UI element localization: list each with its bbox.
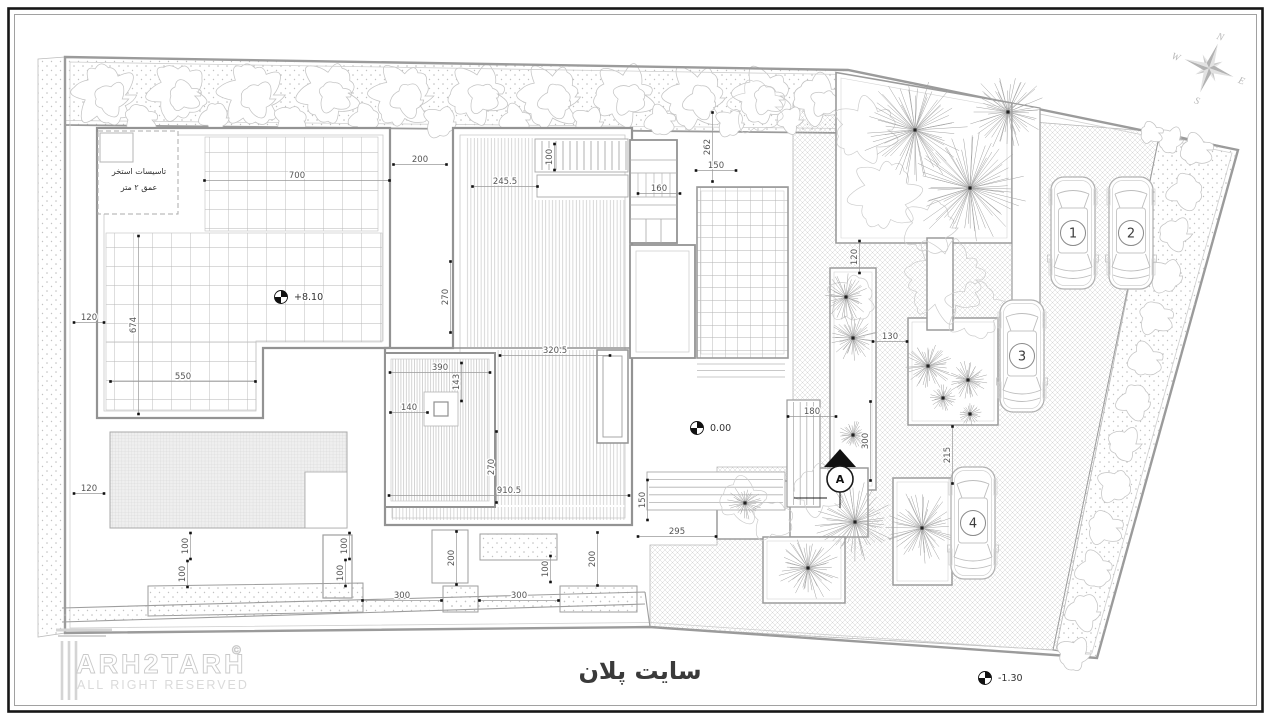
dimension-label: 200 [447,550,457,566]
dimension-label: 120 [850,249,860,265]
dimension-label: 100 [178,566,188,582]
logo-name: ARH2TARH [76,649,247,679]
dimension-label: 100 [340,538,350,554]
dimension-label: 120 [81,313,97,323]
dimension-label: 262 [703,139,713,155]
inner-roof-block [385,353,495,507]
dimension-label: 150 [708,161,724,171]
dimension-label: 150 [638,492,648,508]
pool-equipment-box: تاسيسات استخر عمق ٢ متر [98,131,178,214]
dimension-label: 143 [452,374,462,390]
elevation-label: -1.30 [998,673,1023,684]
dimension-label: 215 [943,447,953,463]
dimension-label: 300 [511,591,527,601]
drawing-title: سایت پلان [578,657,701,685]
parking-number: 3 [1018,350,1026,365]
dimension-label: 270 [487,459,497,475]
elevation-label: 0.00 [710,423,731,434]
car: 3 [997,300,1048,412]
dimension-label: 390 [432,363,448,373]
dimension-label: 130 [882,332,898,342]
skylight-shaft [597,350,628,443]
dimension-label: 160 [651,184,667,194]
dimension-label: 300 [394,591,410,601]
parking-number: 4 [969,517,977,532]
dimension-label: 674 [129,317,139,333]
parking-number: 2 [1127,227,1135,242]
elevation-marker: +8.10 [275,291,324,304]
dimension-label: 910.5 [497,486,521,496]
side-room [630,245,695,358]
drawing-sheet: تاسيسات استخر عمق ٢ متر [0,0,1271,720]
elevation-label: +8.10 [294,292,323,303]
pool-note-line1: تاسيسات استخر [111,167,166,176]
hall-notch [537,175,628,197]
elevation-marker: -1.30 [979,672,1023,685]
dimension-label: 700 [289,171,305,181]
car: 4 [948,467,999,579]
dimension-label: 100 [545,149,555,165]
pool-note-line2: عمق ٢ متر [120,183,158,192]
dimension-label: 320.5 [543,346,567,356]
site-plan-canvas: تاسيسات استخر عمق ٢ متر [0,0,1271,720]
dimension-label: 295 [669,527,685,537]
elevation-marker: 0.00 [691,422,732,435]
terrace-slab [110,432,347,528]
dimension-label: 100 [336,565,346,581]
dimension-label: 200 [588,551,598,567]
car: 1 [1048,177,1099,289]
dimension-label: 300 [861,433,871,449]
left-walkway-strip [38,57,65,637]
dimension-label: 100 [541,561,551,577]
section-marker-label: A [836,473,845,486]
courtyard-plaza [697,187,788,377]
dimension-label: 120 [81,484,97,494]
dimension-label: 140 [401,403,417,413]
dimension-label: 100 [181,538,191,554]
logo-copyright: © [232,643,241,657]
logo-tagline: ALL RIGHT RESERVED [77,678,249,692]
dimension-label: 270 [441,289,451,305]
car: 2 [1106,177,1157,289]
dimension-label: 550 [175,372,191,382]
parking-number: 1 [1069,227,1077,242]
dimension-label: 180 [804,407,820,417]
roof-column [434,402,448,416]
dimension-label: 245.5 [493,177,517,187]
dimension-label: 200 [412,155,428,165]
